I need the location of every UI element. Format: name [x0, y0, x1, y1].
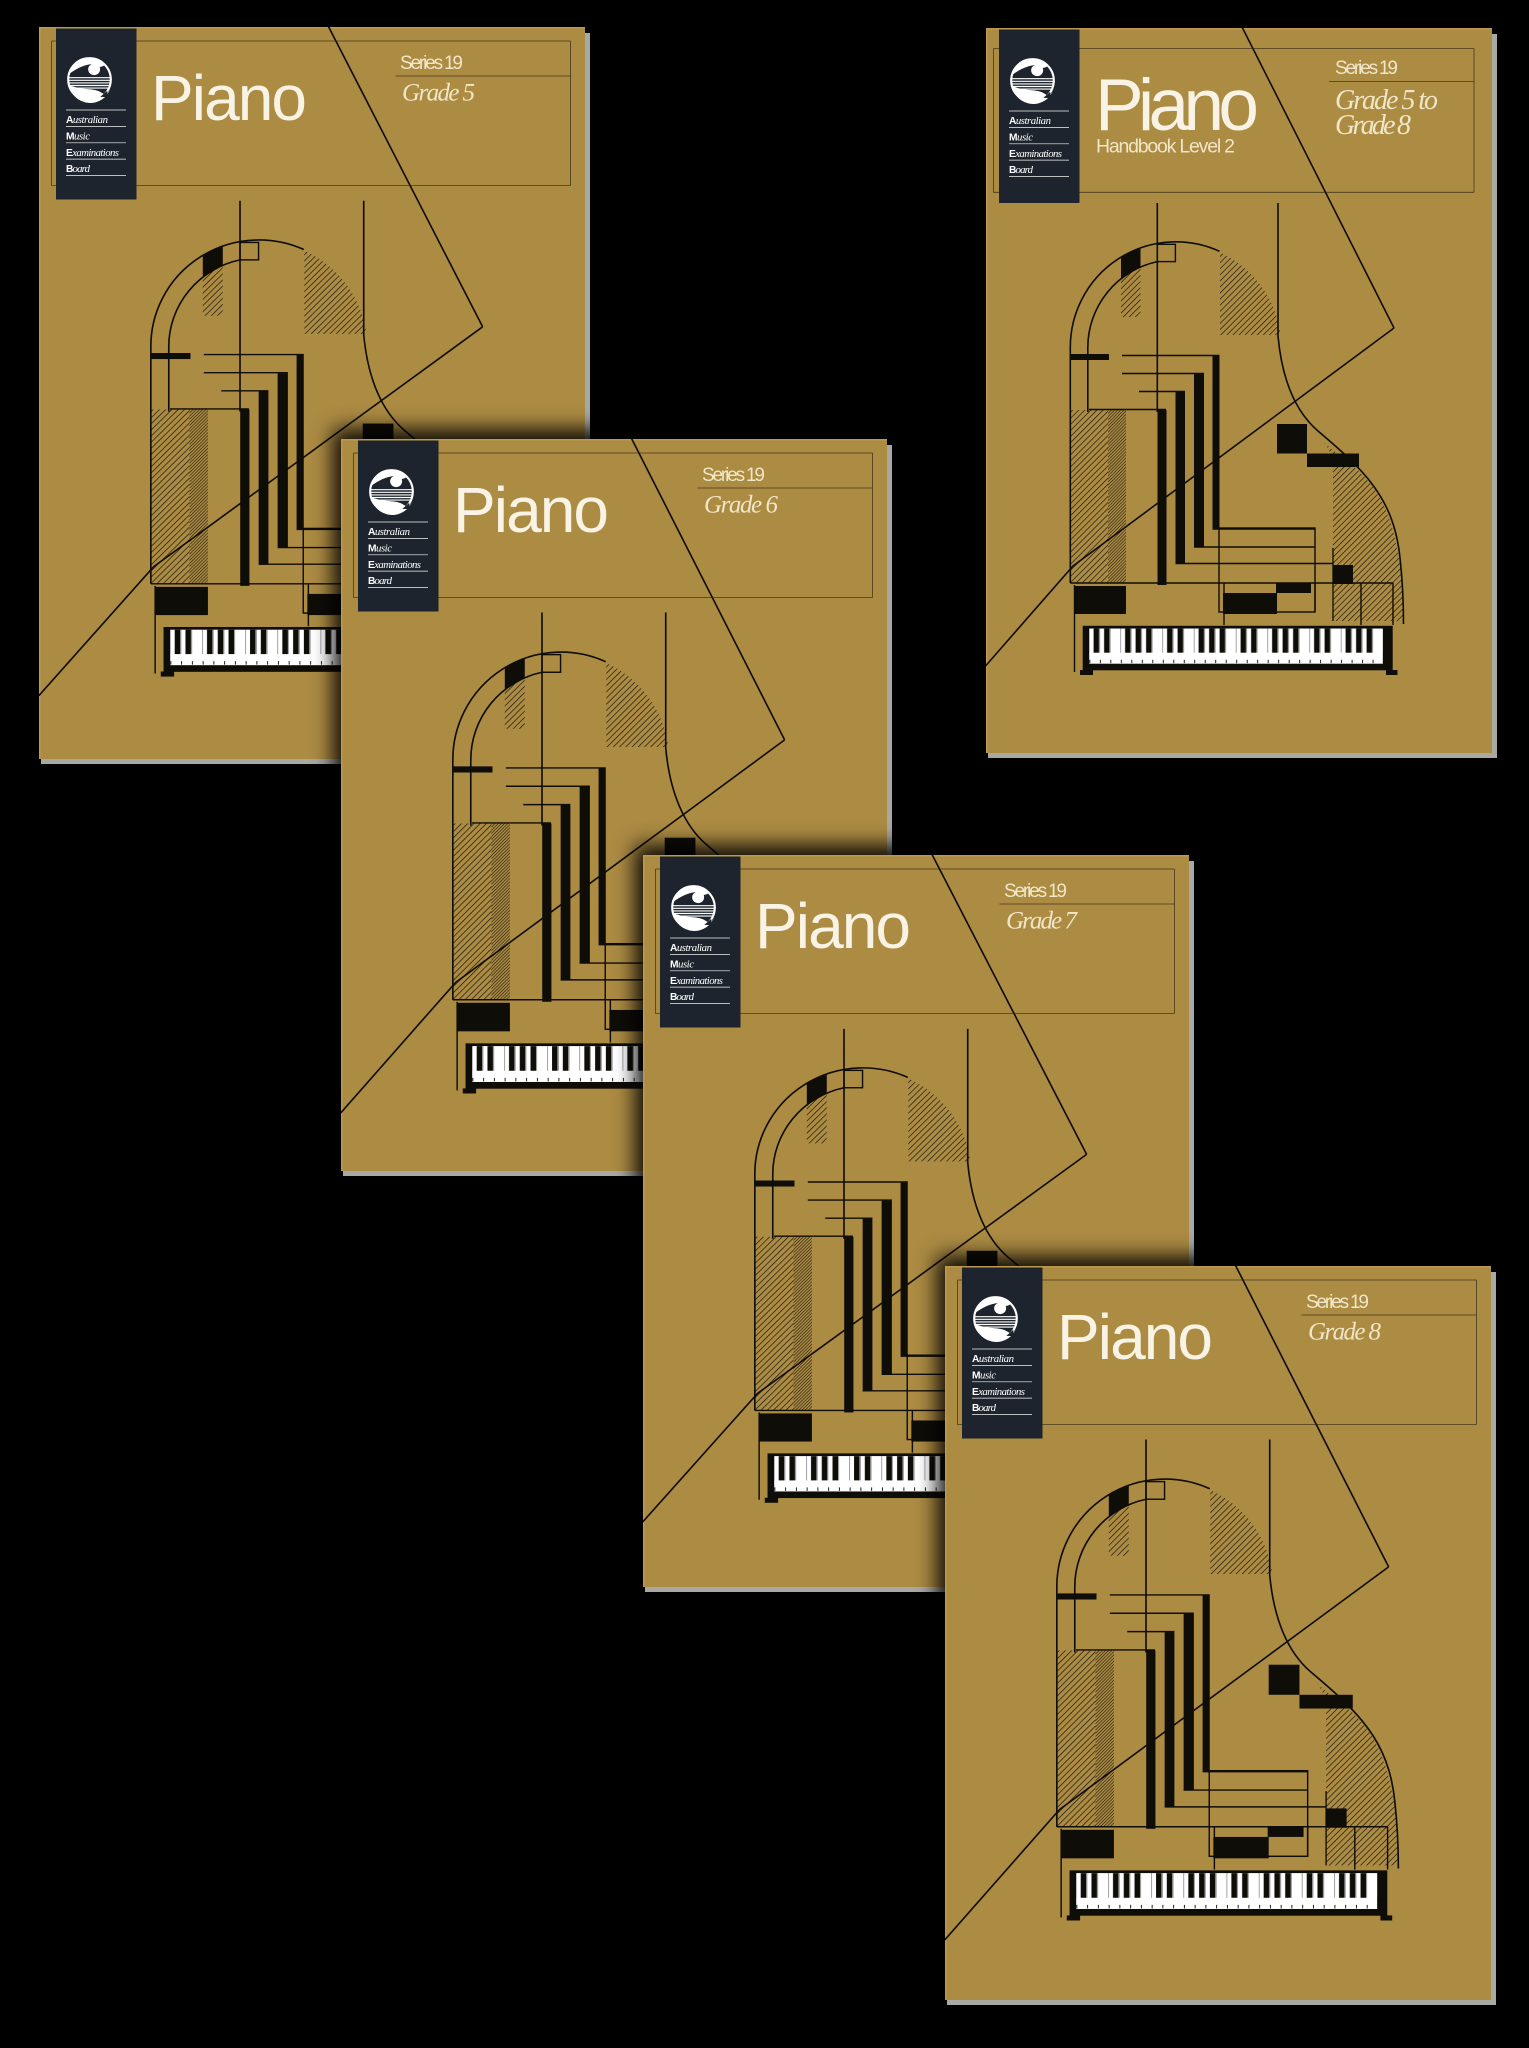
svg-text:Music: Music	[66, 131, 90, 143]
svg-text:Examinations: Examinations	[670, 975, 723, 987]
svg-text:Examinations: Examinations	[66, 147, 119, 159]
svg-text:Series 19: Series 19	[1004, 881, 1067, 902]
svg-text:Board: Board	[670, 991, 695, 1003]
svg-text:Grade 7: Grade 7	[1006, 908, 1079, 935]
svg-text:Examinations: Examinations	[368, 559, 421, 571]
svg-text:Series 19: Series 19	[400, 53, 463, 74]
svg-text:Australian: Australian	[972, 1353, 1014, 1365]
svg-text:Examinations: Examinations	[1009, 148, 1062, 160]
svg-text:Board: Board	[1009, 164, 1034, 176]
svg-text:Piano: Piano	[1057, 1301, 1213, 1373]
svg-text:Grade 5: Grade 5	[402, 80, 475, 107]
svg-text:Music: Music	[368, 543, 392, 555]
svg-text:Music: Music	[670, 959, 694, 971]
svg-text:Music: Music	[1009, 132, 1033, 144]
svg-text:Piano: Piano	[151, 62, 307, 134]
svg-text:Board: Board	[66, 163, 91, 175]
svg-text:Board: Board	[368, 575, 393, 587]
svg-text:Grade 8: Grade 8	[1335, 110, 1411, 141]
svg-text:Piano: Piano	[755, 890, 911, 962]
svg-text:Australian: Australian	[670, 942, 712, 954]
svg-text:Handbook Level 2: Handbook Level 2	[1096, 136, 1235, 158]
svg-text:Australian: Australian	[368, 526, 410, 538]
svg-text:Series 19: Series 19	[1306, 1292, 1369, 1313]
svg-text:Board: Board	[972, 1402, 997, 1414]
svg-text:Piano: Piano	[453, 474, 609, 546]
svg-text:Australian: Australian	[1009, 115, 1051, 127]
svg-text:Examinations: Examinations	[972, 1386, 1025, 1398]
svg-text:Australian: Australian	[66, 114, 108, 126]
svg-text:Music: Music	[972, 1370, 996, 1382]
svg-text:Piano: Piano	[1095, 65, 1259, 146]
svg-text:Series 19: Series 19	[1335, 58, 1398, 79]
svg-text:Series 19: Series 19	[702, 465, 765, 486]
svg-text:Grade 6: Grade 6	[704, 492, 779, 519]
svg-text:Grade 8: Grade 8	[1308, 1319, 1382, 1346]
